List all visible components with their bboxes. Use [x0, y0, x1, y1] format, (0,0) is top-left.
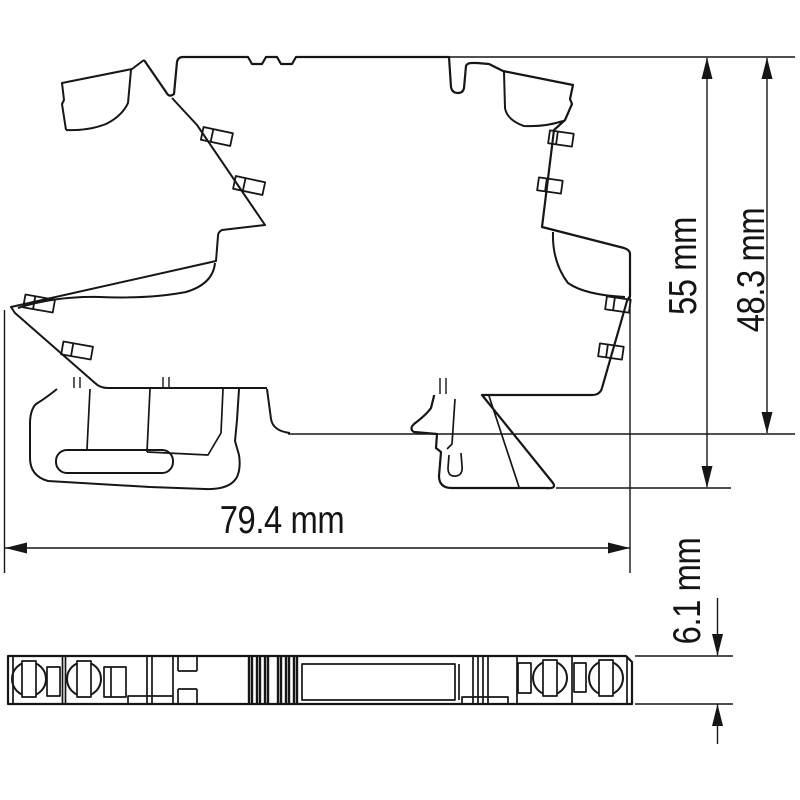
screw-terminal	[12, 661, 46, 697]
dimension-overall-width	[5, 543, 630, 554]
left-mounting-foot	[30, 377, 240, 489]
right-terminal-cavities	[504, 72, 625, 297]
wire-clamp-tabs	[23, 127, 631, 360]
arrowhead-up	[702, 58, 713, 80]
arrowhead-up	[762, 58, 773, 80]
arrowhead-up	[712, 704, 723, 726]
wire-clamp-tab	[598, 343, 624, 359]
arrowhead-left	[5, 543, 27, 554]
dimension-label-module-depth: 6.1 mm	[666, 538, 710, 645]
arrowhead-down	[762, 412, 773, 434]
screw-terminal	[533, 660, 567, 696]
bottom-view	[8, 656, 632, 704]
arrowhead-down	[702, 466, 713, 488]
screw-terminal	[589, 660, 623, 696]
line-art	[0, 0, 800, 800]
screw-terminal	[67, 661, 101, 697]
dimension-label-rail-height: 48.3 mm	[730, 208, 774, 333]
dimension-module-depth	[712, 598, 723, 744]
extension-lines-depth	[635, 656, 733, 704]
dimension-label-overall-width: 79.4 mm	[220, 499, 345, 543]
side-view-outline	[144, 57, 630, 488]
arrowhead-right	[608, 543, 630, 554]
dimension-drawing: 79.4 mm 55 mm 48.3 mm 6.1 mm	[0, 0, 800, 800]
arrowhead-down	[712, 634, 723, 656]
vent-slots	[249, 656, 297, 704]
wire-clamp-tab	[537, 177, 563, 193]
left-upper-terminal	[62, 60, 144, 130]
dimension-label-overall-height: 55 mm	[662, 217, 706, 315]
left-lower-terminal	[11, 98, 290, 433]
bottom-view-details	[13, 656, 627, 704]
